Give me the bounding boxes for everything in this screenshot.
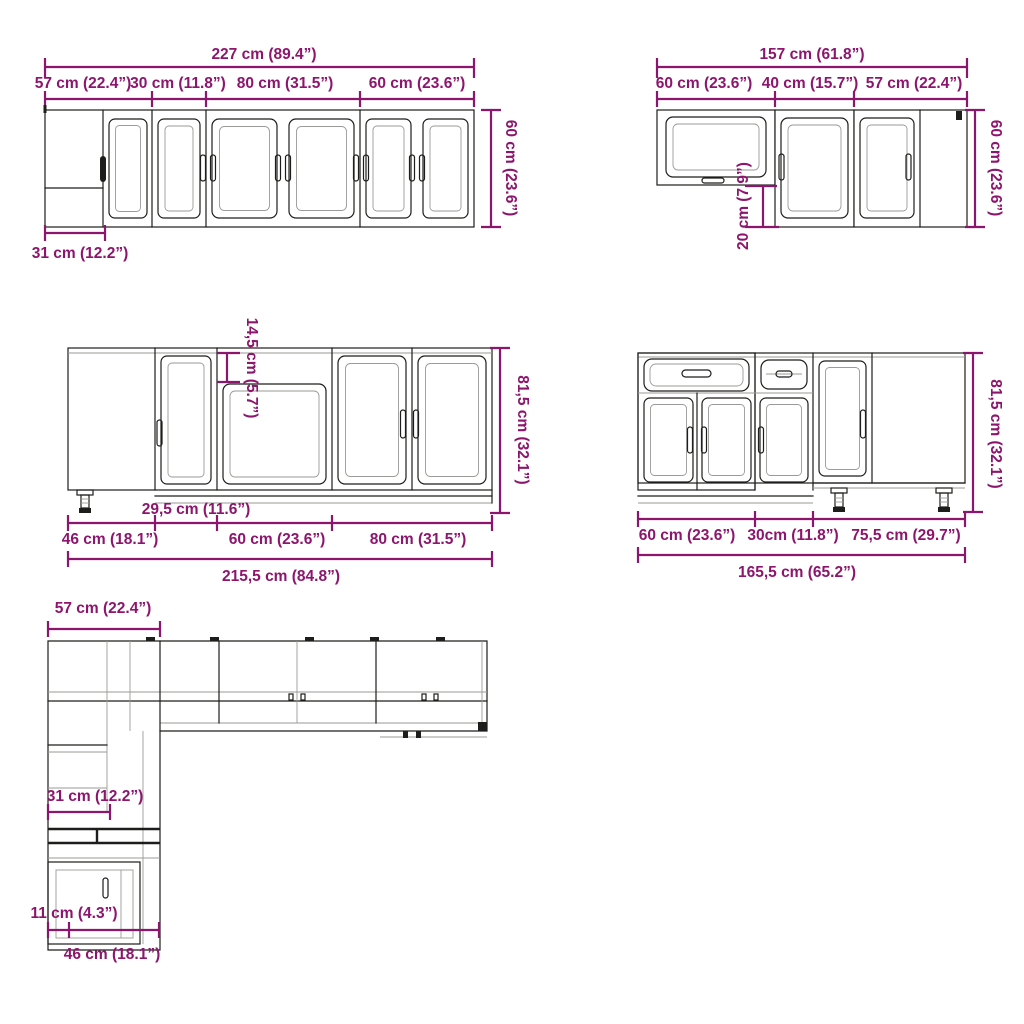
height-offset-label: 20 cm (7.9”): [735, 162, 752, 250]
adjustable-foot: [831, 488, 847, 512]
segment-width-label: 80 cm (31.5”): [237, 75, 334, 92]
total-width-label: 165,5 cm (65.2”): [738, 564, 856, 581]
base-depth-label: 46 cm (18.1”): [64, 946, 161, 963]
segment-width-label: 30 cm (11.8”): [130, 75, 226, 92]
segment-width-label: 60 cm (23.6”): [639, 527, 736, 544]
height-label: 60 cm (23.6”): [502, 120, 519, 217]
base-cabinet-row-left-diagram: 14,5 cm (5.7”) 81,5 cm (32.1”) 29,5 cm (…: [62, 318, 531, 585]
wall-cabinet-row-left-diagram: 227 cm (89.4”) 57 cm (22.4”) 30 cm (11.8…: [32, 46, 519, 262]
segment-width-label: 60 cm (23.6”): [369, 75, 466, 92]
segment-width-label: 30cm (11.8”): [747, 527, 838, 544]
hinge-mark: [956, 111, 962, 120]
segment-width-label: 75,5 cm (29.7”): [851, 527, 960, 544]
base-cabinet-row-right-diagram: 81,5 cm (32.1”) 60 cm (23.6”) 30cm (11.8…: [638, 353, 1004, 581]
corner-width-label: 57 cm (22.4”): [55, 600, 152, 617]
segment-width-label: 46 cm (18.1”): [62, 531, 159, 548]
side-gap-label: 11 cm (4.3”): [30, 905, 117, 922]
adjustable-foot: [77, 490, 93, 513]
height-label: 60 cm (23.6”): [987, 120, 1004, 217]
cabinet-drawing: [657, 110, 967, 227]
corner-depth-label: 31 cm (12.2”): [32, 245, 129, 262]
height-label: 81,5 cm (32.1”): [514, 375, 531, 484]
total-width-label: 215,5 cm (84.8”): [222, 568, 340, 585]
total-width-label: 227 cm (89.4”): [211, 46, 316, 63]
height-label: 81,5 cm (32.1”): [987, 379, 1004, 488]
segment-width-label: 57 cm (22.4”): [35, 75, 132, 92]
cabinet-drawing: [638, 353, 965, 512]
product-dimension-image: 227 cm (89.4”) 57 cm (22.4”) 30 cm (11.8…: [0, 0, 1024, 1024]
segment-width-label: 57 cm (22.4”): [866, 75, 963, 92]
door-handle: [100, 156, 106, 182]
cabinet-drawing: [44, 105, 475, 227]
corner-front-width-label: 29,5 cm (11.6”): [142, 501, 251, 518]
segment-width-label: 60 cm (23.6”): [656, 75, 753, 92]
wall-cabinet-row-right-diagram: 157 cm (61.8”) 60 cm (23.6”) 40 cm (15.7…: [656, 46, 1004, 250]
adjustable-foot: [936, 488, 952, 512]
segment-width-label: 40 cm (15.7”): [762, 75, 859, 92]
cabinet-drawing: [68, 348, 492, 513]
hinge-mark: [44, 105, 47, 113]
segment-width-label: 60 cm (23.6”): [229, 531, 326, 548]
sink-top-drop-label: 14,5 cm (5.7”): [243, 318, 260, 419]
segment-width-label: 80 cm (31.5”): [370, 531, 467, 548]
corner-layout-plan-diagram: 57 cm (22.4”): [30, 600, 487, 963]
dimension-diagram-svg: 227 cm (89.4”) 57 cm (22.4”) 30 cm (11.8…: [0, 0, 1024, 1024]
total-width-label: 157 cm (61.8”): [759, 46, 864, 63]
door-handle: [103, 878, 108, 898]
wall-depth-label: 31 cm (12.2”): [47, 788, 144, 805]
